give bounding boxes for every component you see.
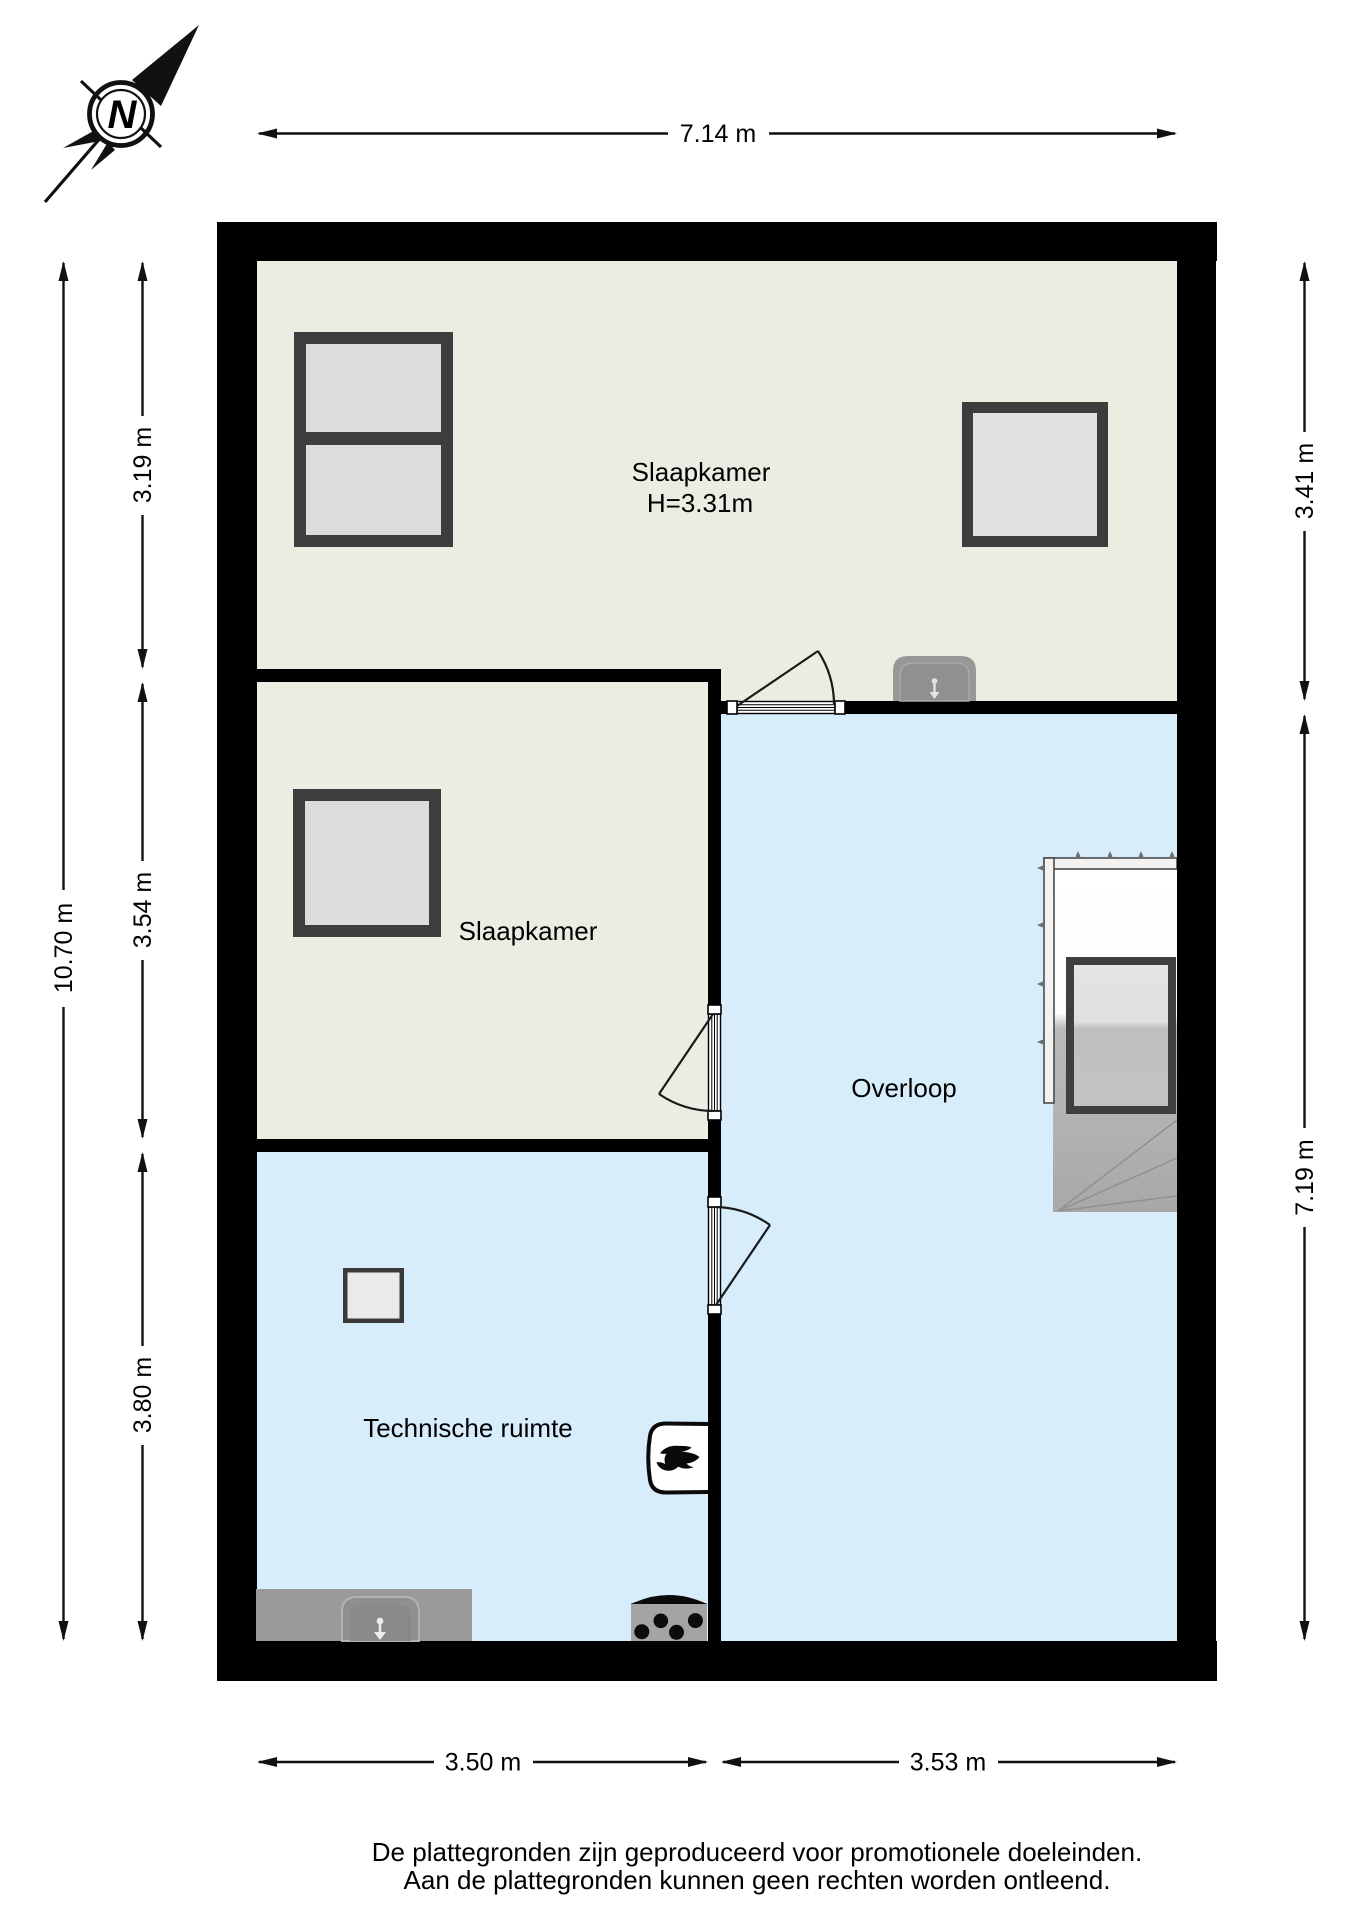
svg-text:3.80 m: 3.80 m: [129, 1357, 157, 1433]
svg-text:3.41 m: 3.41 m: [1291, 443, 1319, 519]
svg-text:7.19 m: 7.19 m: [1291, 1139, 1319, 1215]
svg-text:H=3.31m: H=3.31m: [647, 488, 753, 518]
svg-text:10.70 m: 10.70 m: [50, 903, 78, 993]
svg-text:3.54 m: 3.54 m: [129, 872, 157, 948]
svg-text:N: N: [108, 93, 138, 137]
svg-text:Slaapkamer: Slaapkamer: [459, 916, 598, 946]
svg-text:3.53 m: 3.53 m: [910, 1749, 986, 1777]
svg-text:Aan de plattegronden kunnen ge: Aan de plattegronden kunnen geen rechten…: [404, 1865, 1111, 1895]
svg-text:3.19 m: 3.19 m: [129, 427, 157, 503]
svg-text:De plattegronden zijn geproduc: De plattegronden zijn geproduceerd voor …: [372, 1837, 1142, 1867]
svg-text:3.50 m: 3.50 m: [445, 1749, 521, 1777]
svg-text:Technische ruimte: Technische ruimte: [363, 1413, 573, 1443]
svg-text:7.14 m: 7.14 m: [680, 120, 756, 148]
svg-text:Slaapkamer: Slaapkamer: [632, 457, 771, 487]
svg-text:Overloop: Overloop: [851, 1073, 957, 1103]
